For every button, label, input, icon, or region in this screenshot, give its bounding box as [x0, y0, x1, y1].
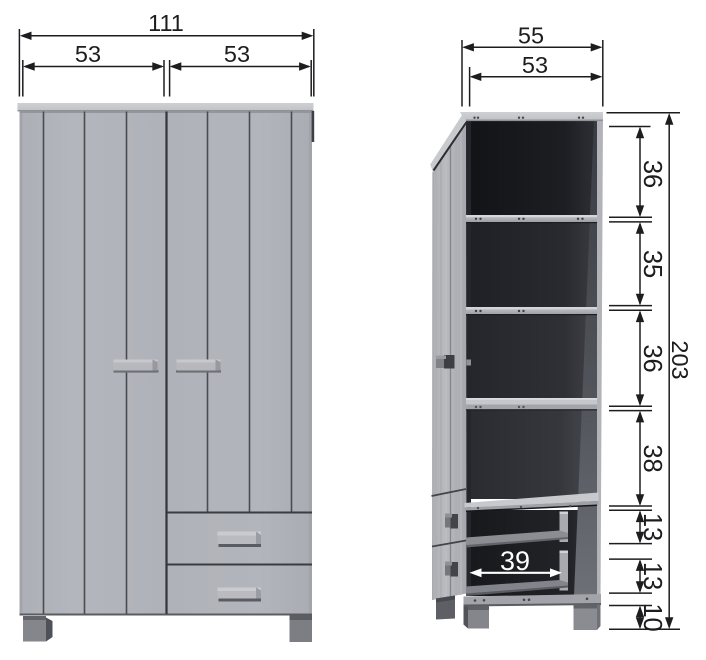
svg-text:53: 53: [75, 41, 101, 67]
svg-text:55: 55: [518, 23, 544, 49]
svg-text:13: 13: [638, 513, 666, 541]
svg-text:53: 53: [224, 41, 250, 67]
svg-text:10: 10: [638, 603, 666, 631]
svg-text:203: 203: [667, 340, 693, 379]
svg-text:53: 53: [522, 52, 548, 78]
svg-text:38: 38: [638, 444, 666, 472]
svg-text:36: 36: [638, 160, 666, 188]
svg-text:35: 35: [638, 250, 666, 278]
svg-text:13: 13: [638, 562, 666, 590]
svg-text:39: 39: [500, 546, 530, 576]
svg-text:36: 36: [638, 344, 666, 372]
svg-text:111: 111: [148, 10, 184, 36]
